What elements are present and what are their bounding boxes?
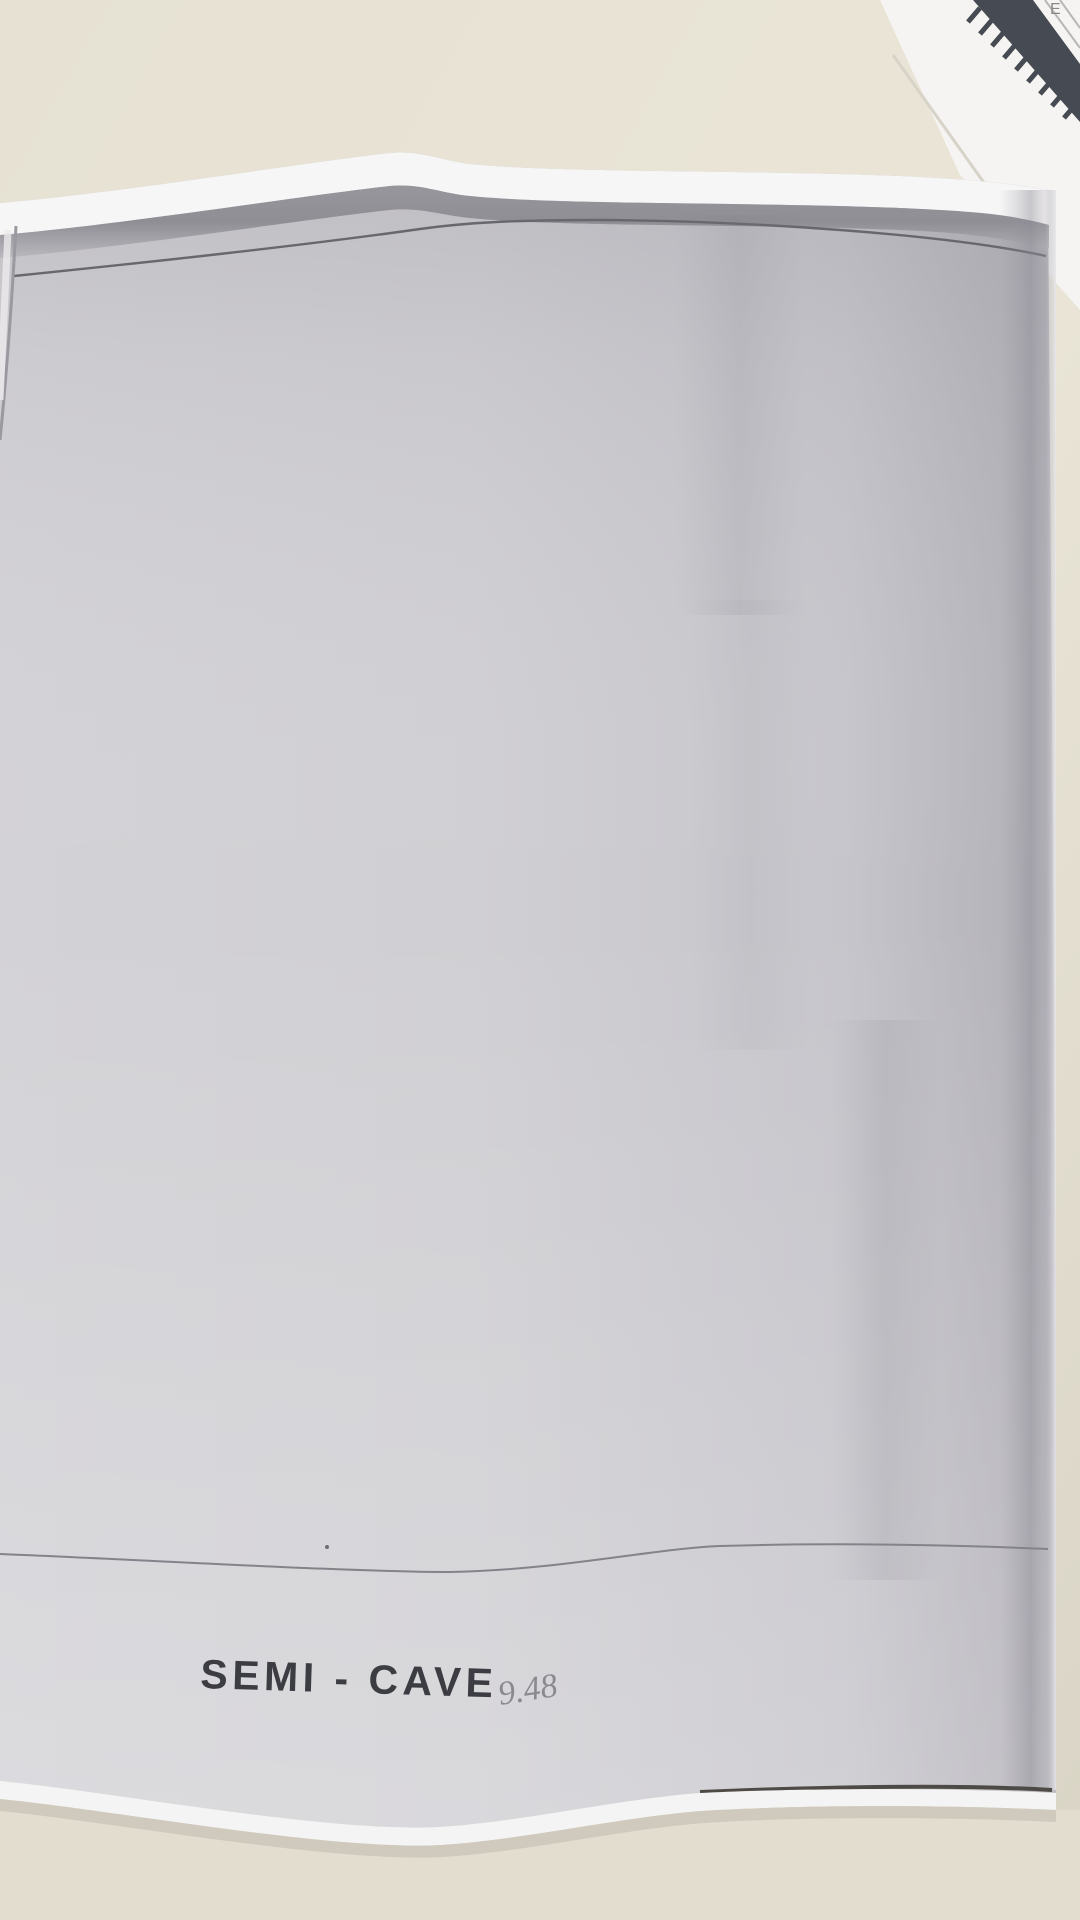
svg-text:E: E (1050, 1, 1061, 18)
svg-text:SEMI - CAVE: SEMI - CAVE (200, 1651, 498, 1706)
